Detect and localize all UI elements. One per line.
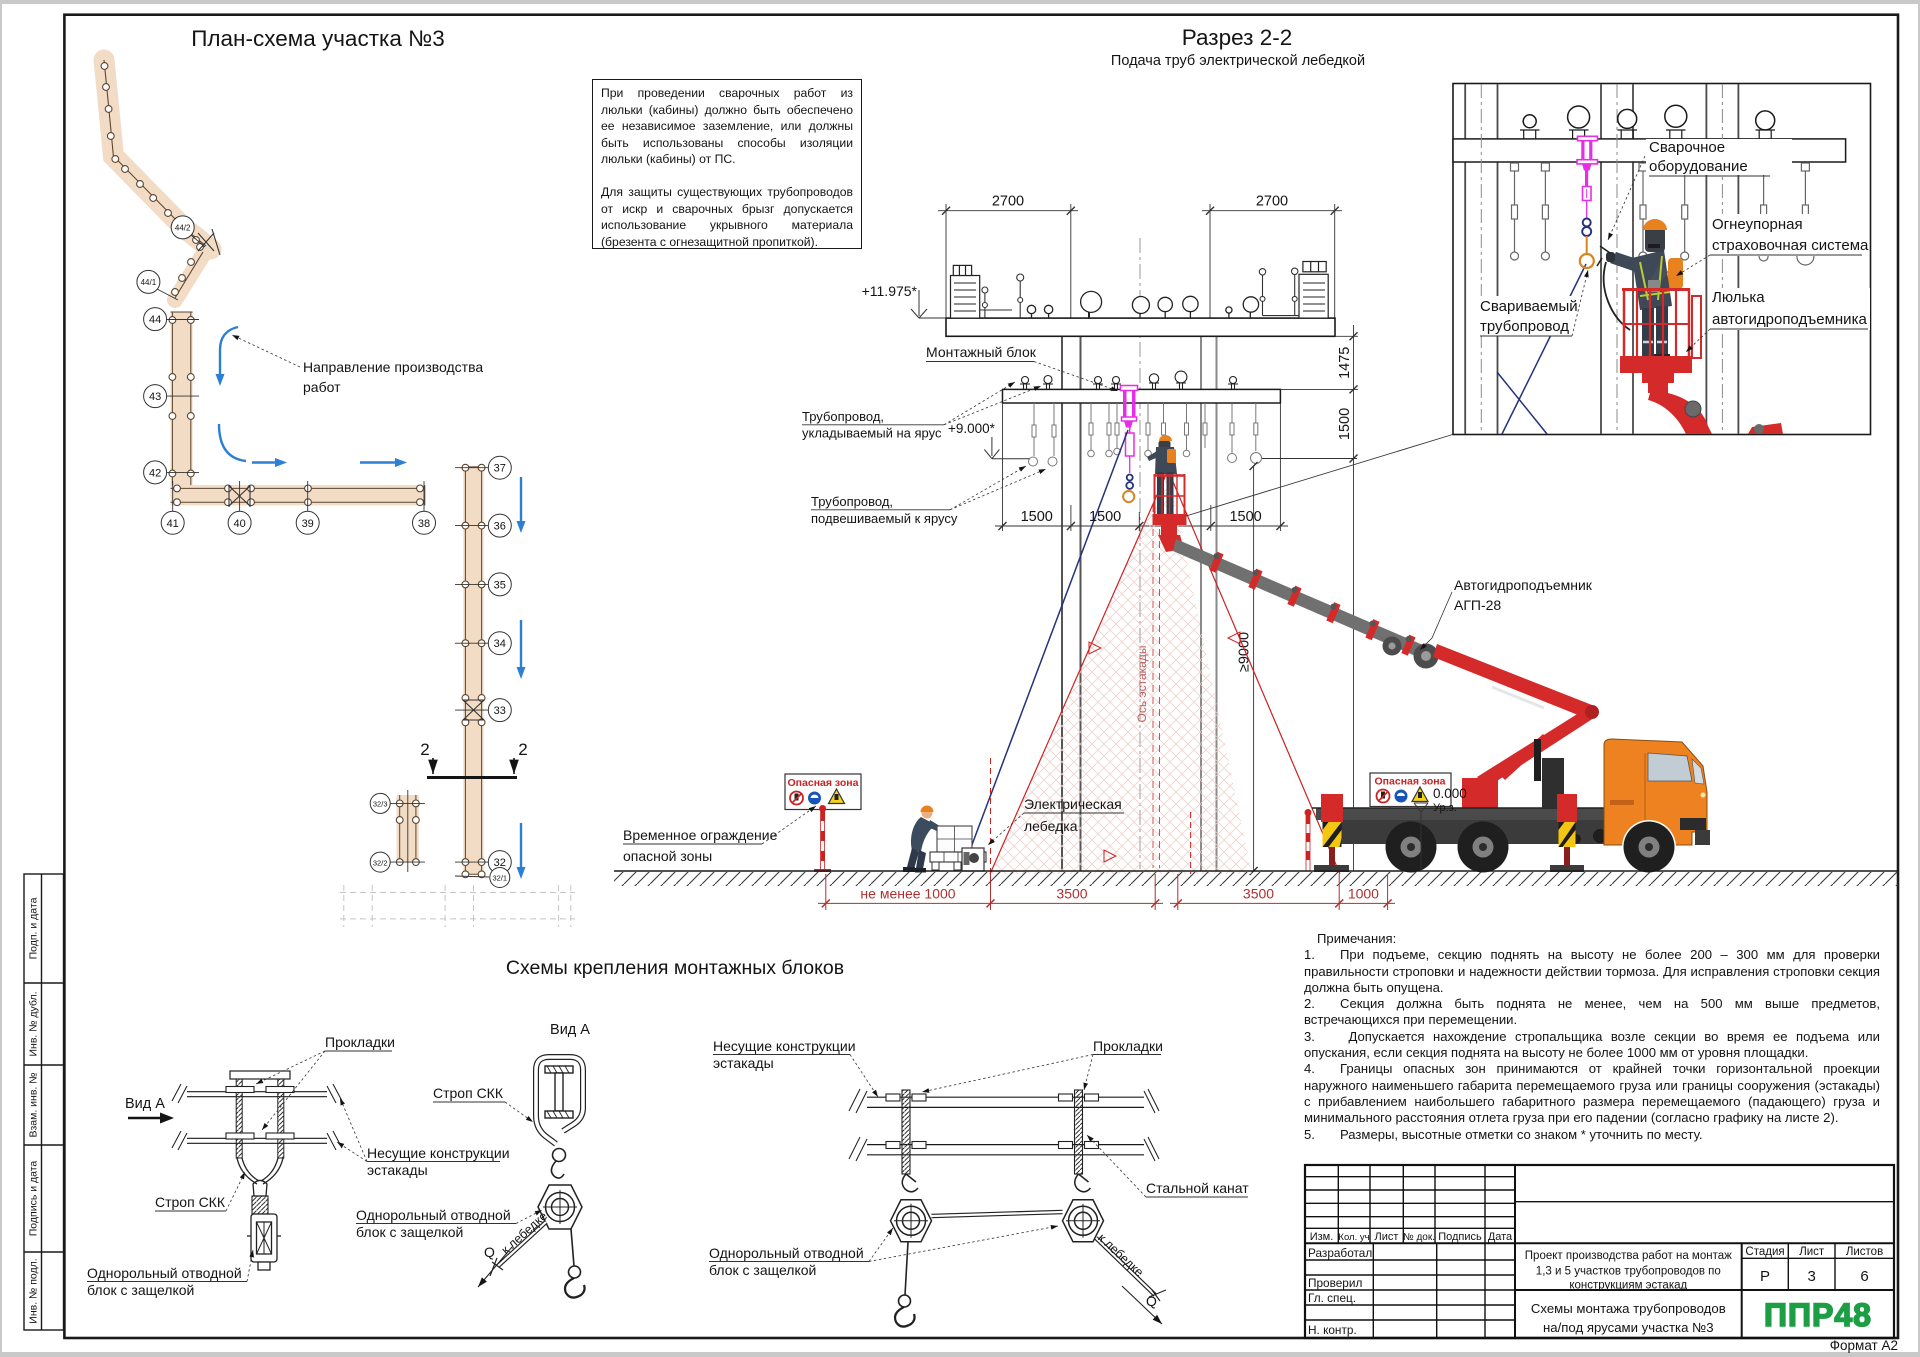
svg-text:Стальной канат: Стальной канат (1146, 1180, 1249, 1196)
svg-text:35: 35 (494, 579, 506, 591)
svg-text:Разработал: Разработал (1308, 1246, 1372, 1260)
svg-text:42: 42 (149, 467, 161, 479)
svg-text:работ: работ (303, 379, 341, 395)
svg-text:к лебедке: к лебедке (1095, 1231, 1146, 1280)
svg-text:3: 3 (1808, 1268, 1816, 1285)
svg-text:6: 6 (1860, 1268, 1868, 1285)
svg-text:Подача труб электрической лебе: Подача труб электрической лебедкой (1111, 53, 1365, 69)
svg-text:Формат А2: Формат А2 (1830, 1338, 1898, 1353)
svg-text:1000: 1000 (1348, 886, 1379, 902)
svg-text:укладываемый на ярус: укладываемый на ярус (802, 426, 942, 441)
svg-text:43: 43 (149, 391, 161, 403)
svg-text:1500: 1500 (1021, 509, 1053, 525)
svg-text:+11.975*: +11.975* (862, 283, 918, 299)
svg-text:Прокладки: Прокладки (1093, 1038, 1163, 1054)
svg-text:38: 38 (418, 518, 430, 530)
svg-text:Проект производства работ на м: Проект производства работ на монтаж (1525, 1250, 1732, 1262)
svg-text:блок с защелкой: блок с защелкой (709, 1262, 816, 1278)
svg-text:не менее 1000: не менее 1000 (860, 886, 955, 902)
svg-text:Подпись и дата: Подпись и дата (28, 1161, 40, 1237)
svg-text:Инв. № дубл.: Инв. № дубл. (28, 991, 40, 1056)
svg-text:Направление производства: Направление производства (303, 359, 483, 375)
svg-text:3500: 3500 (1056, 886, 1087, 902)
svg-text:Изм.: Изм. (1310, 1231, 1334, 1243)
svg-text:Опасная зона: Опасная зона (788, 777, 859, 789)
svg-text:Схемы монтажа трубопроводов: Схемы монтажа трубопроводов (1531, 1301, 1726, 1316)
svg-text:3500: 3500 (1243, 886, 1274, 902)
svg-text:АГП-28: АГП-28 (1454, 597, 1501, 613)
svg-text:1500: 1500 (1089, 509, 1121, 525)
svg-text:Лист: Лист (1375, 1231, 1399, 1243)
svg-text:33: 33 (494, 705, 506, 717)
svg-text:2: 2 (420, 740, 429, 759)
svg-text:Ур.з.: Ур.з. (1433, 802, 1457, 814)
svg-text:Несущие конструкции: Несущие конструкции (367, 1145, 510, 1161)
svg-text:Инв. № подл.: Инв. № подл. (28, 1258, 40, 1323)
svg-text:оборудование: оборудование (1649, 158, 1748, 175)
svg-text:2700: 2700 (992, 194, 1024, 210)
svg-text:2: 2 (518, 740, 527, 759)
svg-text:Дата: Дата (1488, 1231, 1513, 1243)
svg-text:Временное ограждение: Временное ограждение (623, 827, 778, 843)
svg-text:44/2: 44/2 (175, 224, 191, 233)
svg-text:Несущие конструкции: Несущие конструкции (713, 1038, 856, 1054)
svg-text:+9.000*: +9.000* (948, 421, 996, 436)
svg-text:0.000: 0.000 (1433, 786, 1467, 801)
svg-text:Разрез 2-2: Разрез 2-2 (1182, 25, 1292, 50)
svg-text:Однорольный отводной: Однорольный отводной (356, 1207, 511, 1223)
svg-text:32/3: 32/3 (373, 800, 388, 809)
svg-text:41: 41 (167, 518, 179, 530)
svg-text:Вид А: Вид А (550, 1022, 590, 1038)
svg-text:Гл. спец.: Гл. спец. (1308, 1291, 1356, 1305)
svg-text:конструкциям эстакад: конструкциям эстакад (1569, 1280, 1687, 1292)
svg-text:Кол. уч: Кол. уч (1338, 1232, 1369, 1243)
svg-text:Подп. и дата: Подп. и дата (28, 897, 40, 959)
svg-text:Прокладки: Прокладки (325, 1034, 395, 1050)
svg-text:2700: 2700 (1256, 194, 1288, 210)
svg-text:Трубопровод,: Трубопровод, (802, 409, 884, 424)
svg-text:страховочная система: страховочная система (1712, 237, 1869, 254)
svg-text:ППР48: ППР48 (1764, 1297, 1872, 1333)
svg-text:План-схема участка №3: План-схема участка №3 (191, 26, 445, 51)
svg-text:Монтажный блок: Монтажный блок (926, 344, 1037, 360)
svg-text:36: 36 (494, 521, 506, 533)
svg-text:1475: 1475 (1337, 347, 1353, 379)
svg-text:Сварочное: Сварочное (1649, 139, 1725, 156)
svg-text:Строп СКК: Строп СКК (155, 1194, 226, 1210)
svg-text:1500: 1500 (1229, 509, 1261, 525)
svg-text:Схемы крепления монтажных блок: Схемы крепления монтажных блоков (506, 957, 844, 979)
svg-text:эстакады: эстакады (367, 1162, 428, 1178)
svg-text:подвешиваемый к ярусу: подвешиваемый к ярусу (811, 511, 958, 526)
svg-text:32/1: 32/1 (492, 874, 507, 883)
svg-text:Огнеупорная: Огнеупорная (1712, 216, 1803, 233)
svg-text:Проверил: Проверил (1308, 1276, 1362, 1290)
svg-text:1,3 и 5 участков трубопроводов: 1,3 и 5 участков трубопроводов по (1536, 1266, 1721, 1278)
svg-text:34: 34 (494, 638, 506, 650)
svg-text:Электрическая: Электрическая (1024, 796, 1122, 812)
svg-text:№ док.: № док. (1403, 1232, 1435, 1243)
svg-text:Лист: Лист (1799, 1246, 1825, 1258)
svg-text:Стадия: Стадия (1745, 1246, 1784, 1258)
svg-text:39: 39 (302, 518, 314, 530)
svg-text:Однорольный отводной: Однорольный отводной (709, 1245, 864, 1261)
svg-text:Трубопровод,: Трубопровод, (811, 494, 893, 509)
svg-text:опасной зоны: опасной зоны (623, 848, 712, 864)
svg-text:блок с защелкой: блок с защелкой (356, 1224, 463, 1240)
svg-text:эстакады: эстакады (713, 1055, 774, 1071)
svg-text:автогидроподъемника: автогидроподъемника (1712, 311, 1867, 328)
svg-text:Р: Р (1760, 1268, 1770, 1285)
svg-text:Ось эстакады: Ось эстакады (1135, 646, 1149, 723)
svg-text:40: 40 (233, 518, 245, 530)
svg-text:блок с защелкой: блок с защелкой (87, 1282, 194, 1298)
svg-text:Листов: Листов (1846, 1246, 1883, 1258)
svg-text:Взам. инв. №: Взам. инв. № (28, 1072, 40, 1137)
svg-text:Автогидроподъемник: Автогидроподъемник (1454, 577, 1593, 593)
svg-text:Подпись: Подпись (1438, 1231, 1482, 1243)
svg-text:Q: Q (1146, 1293, 1157, 1309)
svg-text:44: 44 (149, 314, 161, 326)
svg-text:37: 37 (494, 463, 506, 475)
svg-text:Вид А: Вид А (125, 1096, 165, 1112)
svg-text:лебедка: лебедка (1024, 818, 1078, 834)
svg-text:Люлька: Люлька (1712, 289, 1765, 306)
svg-text:на/под ярусами участка №3: на/под ярусами участка №3 (1543, 1320, 1714, 1335)
svg-text:Строп СКК: Строп СКК (433, 1085, 504, 1101)
svg-text:Однорольный отводной: Однорольный отводной (87, 1265, 242, 1281)
svg-text:32/2: 32/2 (373, 858, 388, 867)
svg-text:Н. контр.: Н. контр. (1308, 1323, 1357, 1337)
svg-text:1500: 1500 (1337, 408, 1353, 440)
svg-text:Q: Q (484, 1244, 495, 1260)
svg-text:44/1: 44/1 (141, 278, 157, 287)
svg-text:Свариваемый: Свариваемый (1480, 298, 1578, 315)
svg-text:трубопровод: трубопровод (1480, 318, 1569, 335)
